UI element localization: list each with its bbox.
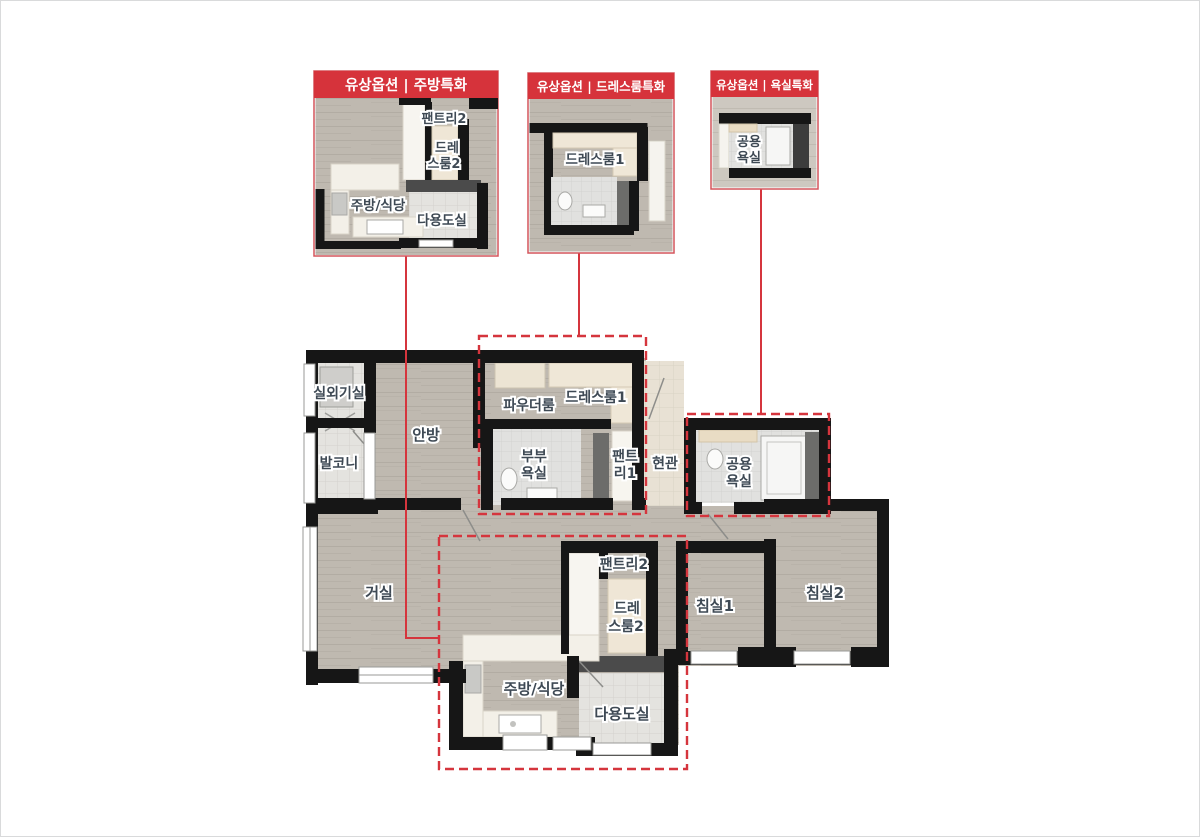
mini2-wall-bottom: [544, 225, 634, 235]
mini2-column: [617, 181, 629, 225]
wall-bed1-top: [676, 541, 776, 553]
mini3-wall-top: [719, 113, 811, 124]
mini1-wall-h: [323, 241, 401, 249]
wall-kitchen-left: [449, 661, 463, 749]
kitchen-faucet: [510, 721, 516, 727]
mini1-label-kitchen: 주방/식당: [351, 197, 406, 214]
label-cbath-2: 욕실: [726, 474, 752, 490]
wall-balcony-master: [364, 358, 376, 433]
cbath-toilet: [707, 449, 723, 469]
mini1-wall-d: [469, 98, 498, 109]
callout-bathroom-miniplan: 공용 욕실: [713, 97, 817, 188]
mini1-label-pantry2: 팬트리2: [422, 111, 467, 127]
mini3-wall-bottom: [729, 168, 811, 178]
label-mbath-1: 부부: [521, 449, 547, 465]
label-dress2-2: 스룸2: [608, 619, 644, 635]
cbath-column: [805, 432, 819, 502]
mini1-label-dress2-2: 스룸2: [428, 156, 461, 172]
wall-dress2-left: [561, 541, 569, 654]
mini2-sink: [583, 205, 605, 217]
window-bed1: [691, 651, 737, 664]
window-balcony-inner: [364, 433, 375, 499]
label-powder: 파우더룸: [503, 398, 555, 414]
window-bed2: [794, 651, 850, 664]
label-master: 안방: [412, 426, 440, 444]
cbath-tub: [761, 436, 807, 500]
callout-kitchen: 유상옵션 | 주방특화 팬트리2 드레 스룸2 주방/식당 다용: [314, 71, 498, 256]
mini1-sink: [367, 220, 403, 234]
mbath-column: [593, 433, 609, 503]
mini1-wall-g: [316, 189, 325, 249]
main-floor-plan: 실외기실 발코니 안방 파우더룸 드레스룸1 부부 욕실 팬트 리1 현관 공용…: [303, 350, 889, 756]
label-kitchen: 주방/식당: [504, 680, 565, 698]
mini2-closet-right: [649, 141, 665, 221]
callout-kitchen-title: 유상옵션 | 주방특화: [345, 76, 468, 94]
callout-bathroom: 유상옵션 | 욕실특화 공용 욕실: [711, 71, 818, 189]
mini3-closet-left: [719, 124, 729, 168]
mini1-wall-c: [458, 119, 469, 183]
wall-h1-mid: [501, 498, 613, 510]
cbath-shelf: [699, 430, 757, 442]
label-dress2-1: 드레: [614, 601, 640, 617]
floor-entrance: [644, 361, 684, 508]
mbath-toilet: [501, 468, 517, 490]
mini3-label-bath-1: 공용: [737, 134, 761, 150]
wall-bed-divider-b: [764, 539, 776, 656]
label-living: 거실: [365, 584, 393, 602]
kitchen-sink: [499, 715, 541, 733]
mini3-shelf: [729, 124, 757, 132]
powder-counter: [495, 363, 545, 388]
label-dress1: 드레스룸1: [565, 390, 626, 406]
callout-dressroom: 유상옵션 | 드레스룸특화 드레스룸1: [528, 73, 674, 253]
wall-bed-bottom-right: [851, 647, 889, 667]
mini1-fridge: [332, 193, 347, 215]
wall-cbath-top: [684, 418, 831, 430]
label-bed1: 침실1: [696, 597, 734, 615]
wall-h1-left: [306, 498, 461, 510]
mini3-tub: [766, 127, 790, 165]
callout-dressroom-title: 유상옵션 | 드레스룸특화: [537, 79, 666, 94]
callout-bathroom-title: 유상옵션 | 욕실특화: [716, 78, 813, 92]
window-kitchen-1: [503, 735, 547, 750]
label-balcony: 발코니: [320, 455, 359, 472]
wall-bed-divider-a: [764, 499, 776, 513]
wall-right: [877, 499, 889, 666]
mini2-toilet: [558, 192, 572, 210]
label-cbath-1: 공용: [726, 457, 752, 473]
dress1-closet-top: [549, 363, 637, 387]
label-pantry1-2: 리1: [614, 466, 637, 482]
floorplan-canvas: 실외기실 발코니 안방 파우더룸 드레스룸1 부부 욕실 팬트 리1 현관 공용…: [1, 1, 1200, 837]
label-pantry1-1: 팬트: [612, 449, 638, 465]
callout-kitchen-miniplan: 팬트리2 드레 스룸2 주방/식당 다용도실: [316, 98, 499, 255]
mini3-column: [793, 124, 809, 168]
label-entrance: 현관: [652, 455, 678, 472]
label-pantry2: 팬트리2: [600, 557, 648, 573]
label-bed2: 침실2: [806, 584, 844, 602]
wall-utility-left: [567, 656, 579, 698]
wall-entrance-left: [632, 350, 644, 510]
wall-dress2-top: [561, 541, 658, 553]
mini2-wall-right: [637, 127, 648, 181]
window-kitchen-2: [553, 737, 591, 750]
kitchen-fridge: [465, 665, 481, 693]
mini2-label-dress1: 드레스룸1: [565, 152, 624, 168]
wall-utility-right: [664, 649, 678, 756]
mini1-label-utility: 다용도실: [417, 213, 467, 229]
callout-dressroom-miniplan: 드레스룸1: [530, 99, 673, 252]
mini1-hood: [406, 180, 481, 192]
window-utility: [593, 743, 651, 755]
label-mbath-2: 욕실: [521, 466, 547, 482]
wall-bath-left: [481, 419, 493, 510]
mini3-label-bath-2: 욕실: [737, 150, 761, 166]
mini2-wall-inner: [629, 181, 639, 231]
mini1-label-dress2-1: 드레: [435, 141, 459, 156]
window-balcony: [304, 433, 315, 503]
wall-bath-top: [481, 419, 611, 429]
wall-bed2-top: [776, 499, 889, 511]
mini1-counter-top: [331, 164, 399, 190]
label-utility: 다용도실: [594, 705, 649, 723]
floorplan-page: 실외기실 발코니 안방 파우더룸 드레스룸1 부부 욕실 팬트 리1 현관 공용…: [0, 0, 1200, 837]
label-outdoor-unit: 실외기실: [313, 385, 365, 402]
mini2-closet-top: [553, 133, 637, 148]
mini1-window-a: [419, 240, 453, 247]
wall-wing-divider: [312, 418, 373, 428]
